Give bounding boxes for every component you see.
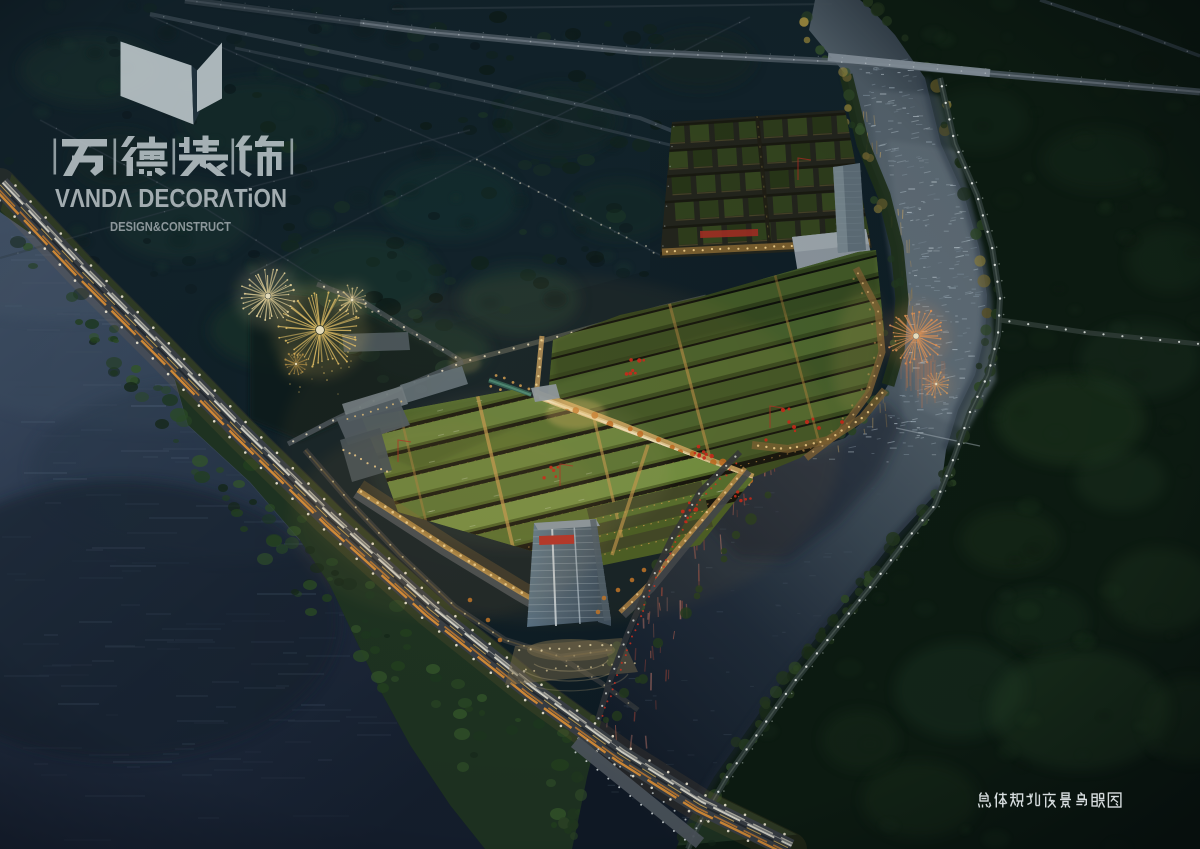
- svg-text:VΛNDΛ DECORΛTiON: VΛNDΛ DECORΛTiON: [55, 183, 287, 213]
- svg-text:DESIGN&CONSTRUCT: DESIGN&CONSTRUCT: [110, 220, 231, 234]
